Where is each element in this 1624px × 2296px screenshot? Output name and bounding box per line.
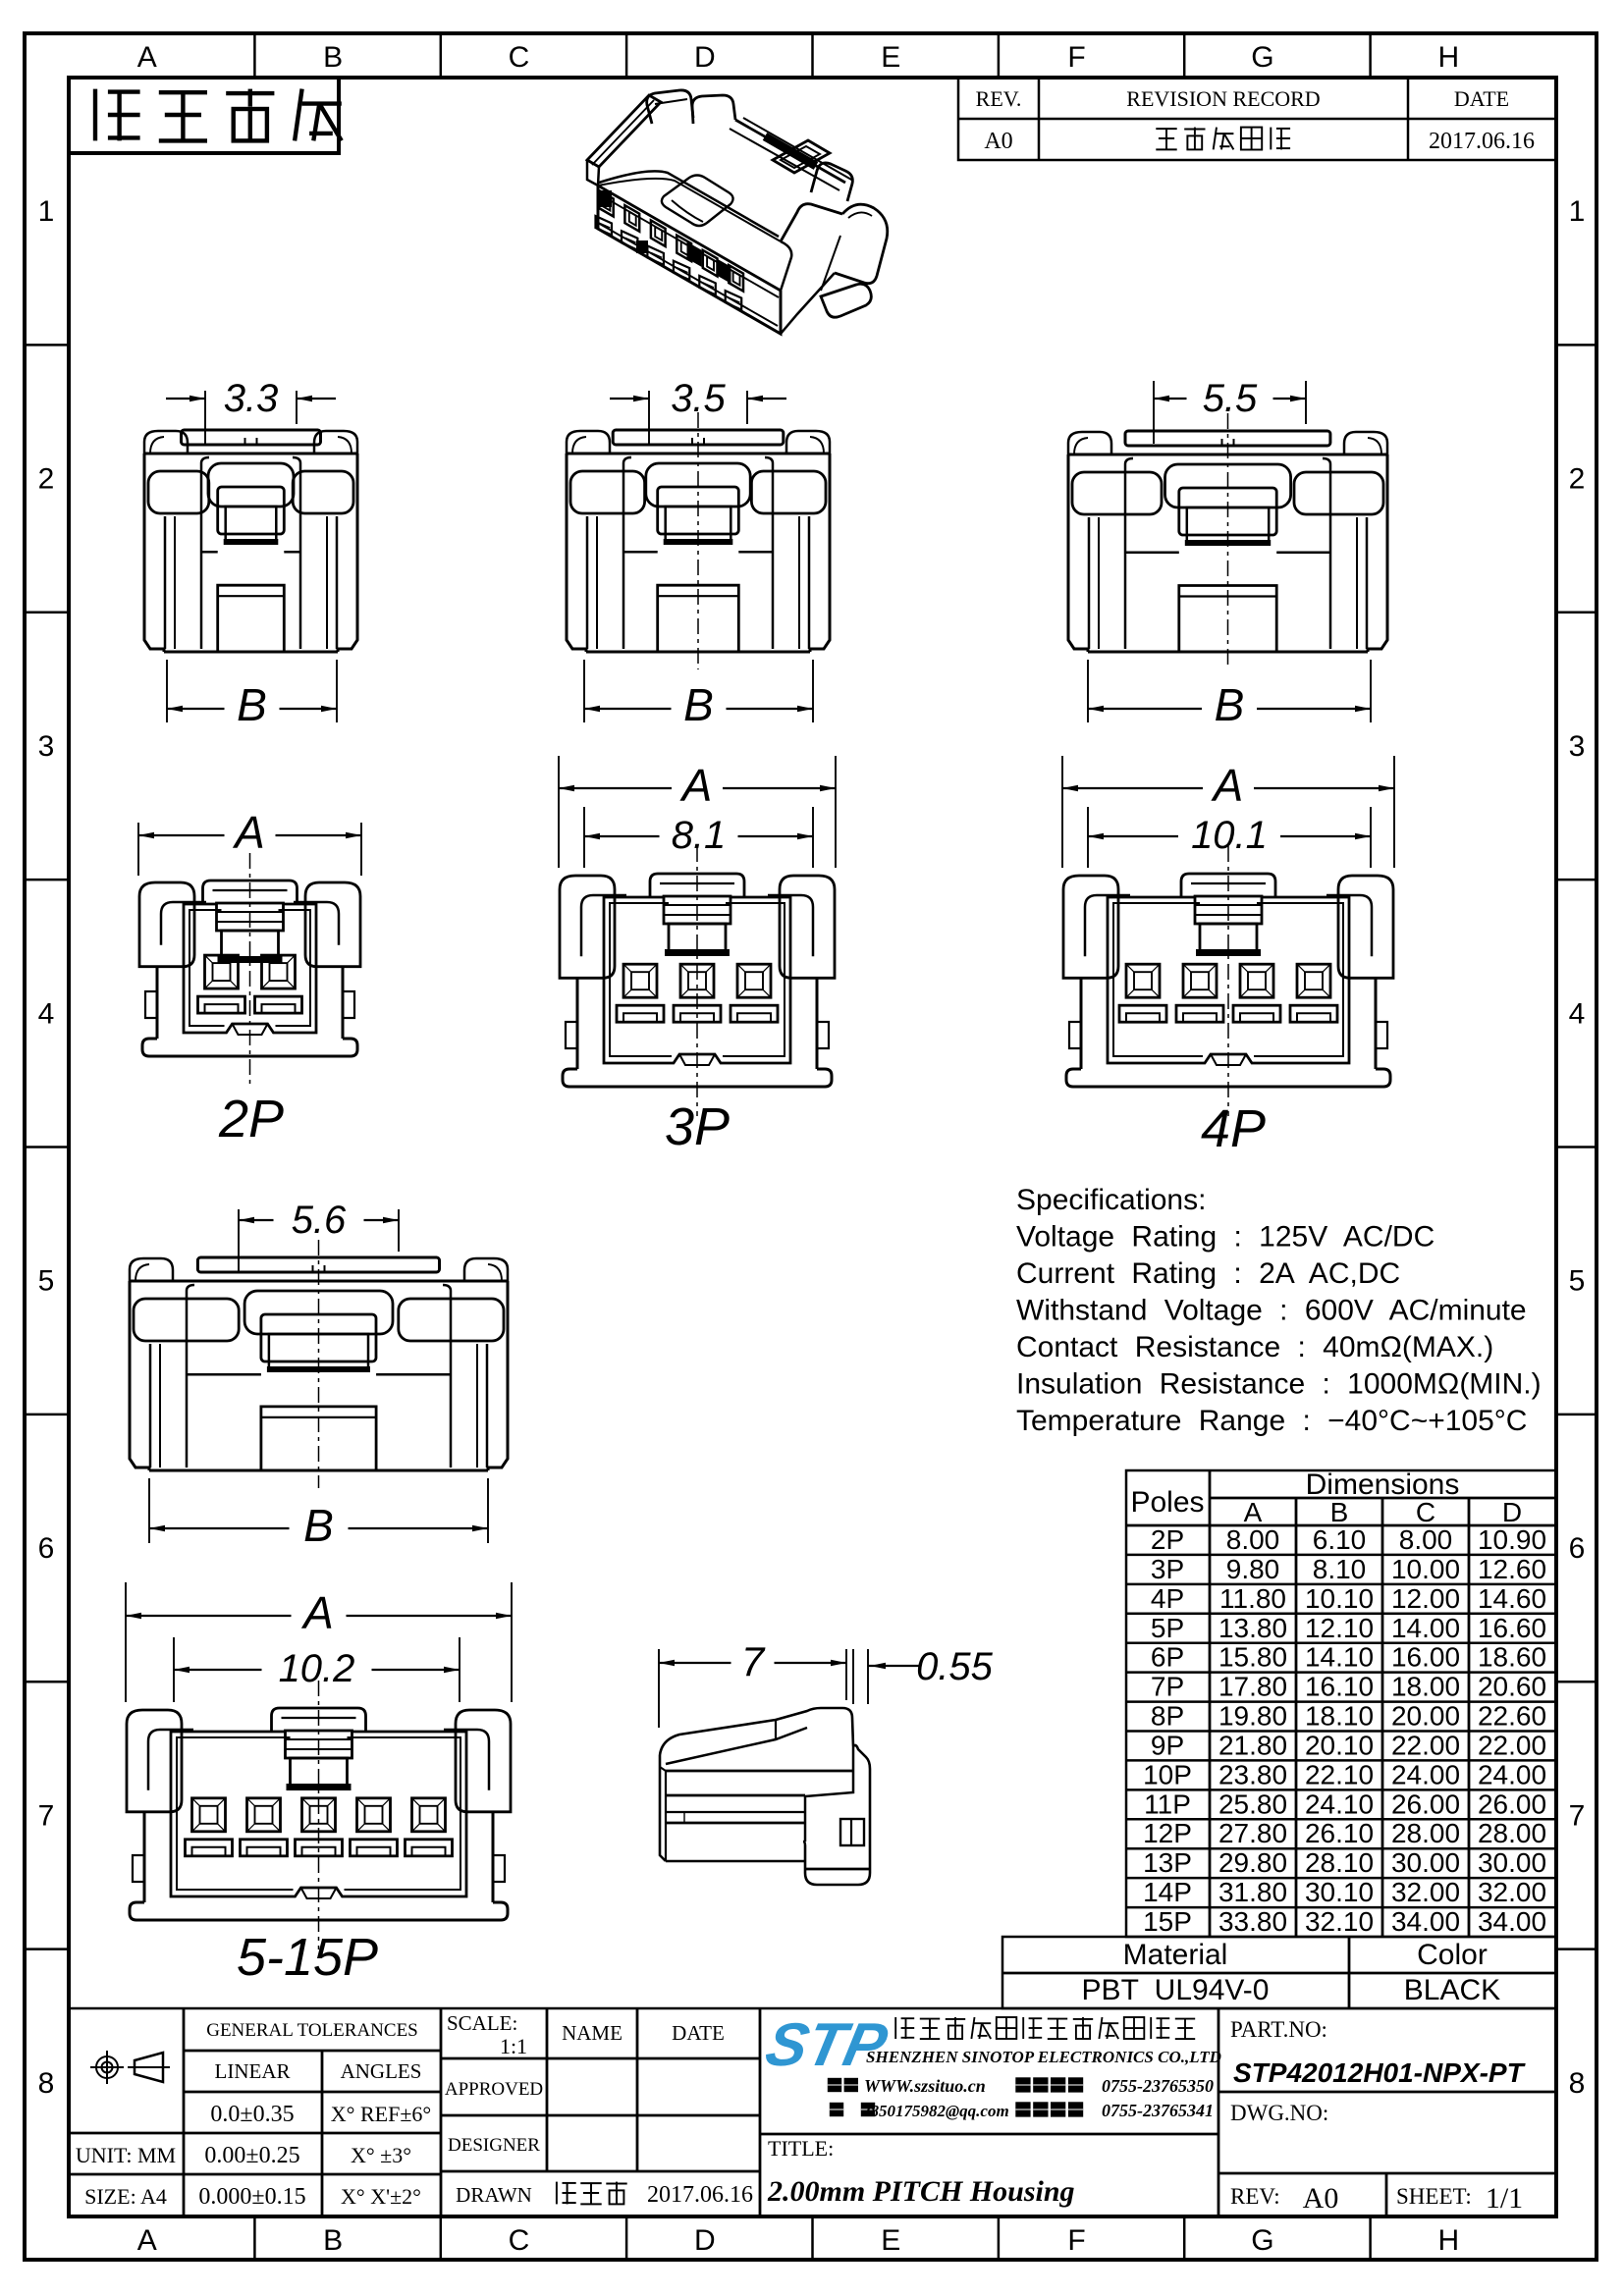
svg-text:3: 3: [1569, 730, 1586, 763]
svg-text:3.3: 3.3: [224, 377, 279, 420]
svg-text:2017.06.16: 2017.06.16: [647, 2182, 753, 2208]
svg-text:8.10: 8.10: [1313, 1554, 1367, 1584]
svg-text:SCALE:: SCALE:: [447, 2011, 517, 2035]
svg-text:20.60: 20.60: [1478, 1672, 1546, 1702]
svg-text:2P: 2P: [218, 1090, 284, 1148]
svg-text:17.80: 17.80: [1218, 1672, 1287, 1702]
svg-text:16.60: 16.60: [1478, 1613, 1546, 1643]
svg-text:F: F: [1067, 2224, 1085, 2257]
svg-text:7: 7: [38, 1799, 55, 1832]
svg-text:16.10: 16.10: [1305, 1672, 1374, 1702]
svg-text:G: G: [1251, 2224, 1273, 2257]
svg-text:12.10: 12.10: [1305, 1613, 1374, 1643]
svg-text:GENERAL TOLERANCES: GENERAL TOLERANCES: [206, 2020, 418, 2041]
svg-text:B: B: [323, 41, 343, 74]
svg-text:B: B: [303, 1500, 334, 1551]
svg-text:20.00: 20.00: [1391, 1701, 1460, 1732]
svg-text:X° ±3°: X° ±3°: [351, 2143, 411, 2167]
svg-text:15P: 15P: [1143, 1906, 1192, 1937]
svg-text:SHEET:: SHEET:: [1396, 2184, 1472, 2209]
svg-text:30.00: 30.00: [1391, 1847, 1460, 1878]
svg-text:5.6: 5.6: [292, 1199, 347, 1242]
svg-text:28.10: 28.10: [1305, 1847, 1374, 1878]
svg-text:32.00: 32.00: [1391, 1877, 1460, 1907]
svg-text:X° X'±2°: X° X'±2°: [341, 2184, 421, 2209]
svg-text:2P: 2P: [1151, 1524, 1184, 1555]
svg-text:14.00: 14.00: [1391, 1613, 1460, 1643]
svg-text:C: C: [509, 41, 530, 74]
svg-text:20.10: 20.10: [1305, 1731, 1374, 1761]
svg-text:10.2: 10.2: [279, 1647, 355, 1690]
svg-text:30.10: 30.10: [1305, 1877, 1374, 1907]
svg-text:10.1: 10.1: [1191, 814, 1268, 857]
svg-text:13P: 13P: [1143, 1847, 1192, 1878]
svg-text:22.60: 22.60: [1478, 1701, 1546, 1732]
svg-text:2.00mm PITCH Housing: 2.00mm PITCH Housing: [767, 2175, 1075, 2208]
svg-text:F: F: [1067, 41, 1085, 74]
svg-text:A: A: [1211, 760, 1244, 811]
svg-text:22.00: 22.00: [1478, 1731, 1546, 1761]
svg-text:5: 5: [38, 1265, 55, 1298]
svg-text:1/1: 1/1: [1486, 2182, 1523, 2215]
svg-text:A: A: [300, 1587, 334, 1638]
svg-text:Insulation Resistance : 1000MΩ: Insulation Resistance : 1000MΩ(MIN.): [1016, 1368, 1542, 1401]
svg-text:28.00: 28.00: [1391, 1818, 1460, 1848]
svg-text:14.60: 14.60: [1478, 1583, 1546, 1614]
svg-text:8.00: 8.00: [1226, 1524, 1280, 1555]
svg-text:21.80: 21.80: [1218, 1731, 1287, 1761]
svg-text:TITLE:: TITLE:: [768, 2136, 834, 2161]
svg-text:10.10: 10.10: [1305, 1583, 1374, 1614]
svg-text:D: D: [1502, 1497, 1522, 1527]
svg-text:3: 3: [38, 730, 55, 763]
svg-text:12.00: 12.00: [1391, 1583, 1460, 1614]
svg-text:DATE: DATE: [1454, 86, 1509, 111]
svg-text:Material: Material: [1123, 1939, 1228, 1971]
svg-text:7: 7: [1569, 1799, 1586, 1832]
svg-text:C: C: [509, 2224, 530, 2257]
svg-text:5-15P: 5-15P: [237, 1928, 378, 1987]
svg-text:15.80: 15.80: [1218, 1642, 1287, 1673]
svg-text:7: 7: [741, 1638, 766, 1684]
svg-text:B: B: [237, 679, 267, 730]
svg-text:H: H: [1437, 2224, 1459, 2257]
svg-text:22.10: 22.10: [1305, 1759, 1374, 1789]
svg-text:A0: A0: [984, 129, 1012, 154]
svg-text:4P: 4P: [1151, 1583, 1184, 1614]
svg-text:Current Rating : 2A AC,DC: Current Rating : 2A AC,DC: [1016, 1257, 1400, 1290]
svg-text:6: 6: [38, 1532, 55, 1565]
svg-text:31.80: 31.80: [1218, 1877, 1287, 1907]
svg-text:4: 4: [38, 997, 55, 1030]
svg-text:A: A: [137, 41, 157, 74]
svg-text:PBT UL94V-0: PBT UL94V-0: [1082, 1974, 1270, 2006]
svg-text:19.80: 19.80: [1218, 1701, 1287, 1732]
svg-text:DESIGNER: DESIGNER: [448, 2135, 540, 2156]
svg-text:DWG.NO:: DWG.NO:: [1230, 2101, 1328, 2125]
svg-text:DATE: DATE: [672, 2021, 725, 2045]
svg-text:5: 5: [1569, 1265, 1586, 1298]
svg-text:B: B: [323, 2224, 343, 2257]
svg-text:0.000±0.15: 0.000±0.15: [198, 2184, 305, 2210]
svg-text:PART.NO:: PART.NO:: [1230, 2017, 1327, 2042]
svg-text:REV:: REV:: [1230, 2184, 1280, 2209]
svg-text:12.60: 12.60: [1478, 1554, 1546, 1584]
svg-text:A: A: [232, 807, 265, 858]
svg-text:A0: A0: [1303, 2182, 1339, 2215]
svg-text:8P: 8P: [1151, 1701, 1184, 1732]
svg-text:E: E: [881, 2224, 900, 2257]
svg-text:2: 2: [1569, 463, 1586, 496]
svg-text:1:1: 1:1: [500, 2034, 527, 2058]
svg-text:D: D: [694, 2224, 716, 2257]
svg-text:24.10: 24.10: [1305, 1789, 1374, 1819]
svg-text:13.80: 13.80: [1218, 1613, 1287, 1643]
svg-text:25.80: 25.80: [1218, 1789, 1287, 1819]
svg-text:5P: 5P: [1151, 1613, 1184, 1643]
svg-text:1: 1: [38, 195, 55, 228]
svg-text:APPROVED: APPROVED: [445, 2079, 543, 2100]
svg-text:0.00±0.25: 0.00±0.25: [204, 2143, 299, 2168]
svg-text:8.1: 8.1: [672, 814, 727, 857]
svg-text:11.80: 11.80: [1219, 1583, 1286, 1614]
svg-text:18.60: 18.60: [1478, 1642, 1546, 1673]
svg-text:24.00: 24.00: [1478, 1759, 1546, 1789]
svg-text:X° REF±6°: X° REF±6°: [331, 2102, 431, 2126]
svg-text:WWW.szsituo.cn: WWW.szsituo.cn: [864, 2076, 986, 2096]
svg-text:STP42012H01-NPX-PT: STP42012H01-NPX-PT: [1233, 2057, 1527, 2088]
svg-text:B: B: [1215, 679, 1245, 730]
svg-text:32.00: 32.00: [1478, 1877, 1546, 1907]
svg-text:Poles: Poles: [1130, 1486, 1204, 1519]
svg-text:Specifications:: Specifications:: [1016, 1184, 1206, 1216]
svg-text:32.10: 32.10: [1305, 1906, 1374, 1937]
svg-text:8.00: 8.00: [1399, 1524, 1453, 1555]
svg-text:1: 1: [1569, 195, 1586, 228]
svg-text:10P: 10P: [1143, 1759, 1192, 1789]
svg-text:2: 2: [38, 463, 55, 496]
svg-text:Contact Resistance : 40mΩ(MAX.: Contact Resistance : 40mΩ(MAX.): [1016, 1331, 1493, 1363]
svg-text:REVISION RECORD: REVISION RECORD: [1126, 86, 1320, 111]
svg-text:6P: 6P: [1151, 1642, 1184, 1673]
svg-text:3.5: 3.5: [671, 377, 726, 420]
svg-text:0.0±0.35: 0.0±0.35: [210, 2102, 294, 2127]
svg-text:B: B: [1330, 1497, 1349, 1527]
svg-text:DRAWN: DRAWN: [456, 2183, 532, 2207]
svg-text:0755-23765341: 0755-23765341: [1102, 2101, 1214, 2120]
svg-text:Dimensions: Dimensions: [1306, 1468, 1460, 1501]
svg-text:0755-23765350: 0755-23765350: [1102, 2076, 1214, 2096]
svg-text:26.00: 26.00: [1478, 1789, 1546, 1819]
svg-text:34.00: 34.00: [1478, 1906, 1546, 1937]
svg-text:STP: STP: [760, 2011, 893, 2079]
svg-text:14.10: 14.10: [1305, 1642, 1374, 1673]
svg-text:UNIT: MM: UNIT: MM: [76, 2143, 176, 2167]
svg-text:E: E: [881, 41, 900, 74]
svg-text:3P: 3P: [665, 1097, 730, 1156]
svg-text:4P: 4P: [1201, 1099, 1266, 1158]
svg-text:3P: 3P: [1151, 1554, 1184, 1584]
svg-text:LINEAR: LINEAR: [215, 2059, 291, 2083]
svg-text:9P: 9P: [1151, 1731, 1184, 1761]
svg-text:18.00: 18.00: [1391, 1672, 1460, 1702]
svg-text:A: A: [137, 2224, 157, 2257]
svg-text:4: 4: [1569, 997, 1586, 1030]
svg-text:8: 8: [38, 2067, 55, 2100]
svg-text:G: G: [1251, 41, 1273, 74]
svg-text:A: A: [679, 760, 713, 811]
svg-text:9.80: 9.80: [1226, 1554, 1280, 1584]
svg-text:NAME: NAME: [562, 2021, 623, 2045]
svg-text:ANGLES: ANGLES: [341, 2059, 422, 2083]
svg-text:B: B: [683, 679, 714, 730]
svg-text:6.10: 6.10: [1313, 1524, 1367, 1555]
svg-text:2017.06.16: 2017.06.16: [1429, 129, 1535, 154]
svg-text:Color: Color: [1417, 1939, 1488, 1971]
svg-text:30.00: 30.00: [1478, 1847, 1546, 1878]
svg-text:10.90: 10.90: [1478, 1524, 1546, 1555]
svg-text:22.00: 22.00: [1391, 1731, 1460, 1761]
svg-text:SHENZHEN SINOTOP ELECTRONICS C: SHENZHEN SINOTOP ELECTRONICS CO.,LTD: [866, 2048, 1221, 2066]
svg-text:REV.: REV.: [976, 86, 1022, 111]
svg-text:14P: 14P: [1143, 1877, 1192, 1907]
svg-text:24.00: 24.00: [1391, 1759, 1460, 1789]
svg-text:16.00: 16.00: [1391, 1642, 1460, 1673]
svg-text:BLACK: BLACK: [1404, 1974, 1500, 2006]
svg-text:12P: 12P: [1143, 1818, 1192, 1848]
svg-text:29.80: 29.80: [1218, 1847, 1287, 1878]
svg-text:10.00: 10.00: [1391, 1554, 1460, 1584]
svg-text:27.80: 27.80: [1218, 1818, 1287, 1848]
svg-text:33.80: 33.80: [1218, 1906, 1287, 1937]
svg-text:D: D: [694, 41, 716, 74]
svg-text:7P: 7P: [1151, 1672, 1184, 1702]
svg-text:18.10: 18.10: [1305, 1701, 1374, 1732]
svg-text:26.10: 26.10: [1305, 1818, 1374, 1848]
svg-text:Voltage Rating : 125V AC/DC: Voltage Rating : 125V AC/DC: [1016, 1221, 1435, 1254]
svg-text:6: 6: [1569, 1532, 1586, 1565]
svg-text:SIZE: A4: SIZE: A4: [84, 2184, 167, 2209]
svg-text:23.80: 23.80: [1218, 1759, 1287, 1789]
svg-text:0.55: 0.55: [916, 1645, 994, 1688]
svg-text:34.00: 34.00: [1391, 1906, 1460, 1937]
svg-text:C: C: [1416, 1497, 1435, 1527]
svg-text:11P: 11P: [1144, 1789, 1191, 1819]
svg-text:H: H: [1437, 41, 1459, 74]
svg-text:A: A: [1244, 1497, 1263, 1527]
svg-text:2850175982@qq.com: 2850175982@qq.com: [861, 2102, 1009, 2120]
svg-text:28.00: 28.00: [1478, 1818, 1546, 1848]
svg-text:5.5: 5.5: [1203, 377, 1258, 420]
svg-text:Temperature Range : −40°C~+105: Temperature Range : −40°C~+105°C: [1016, 1405, 1527, 1437]
svg-text:Withstand Voltage : 600V AC/mi: Withstand Voltage : 600V AC/minute: [1016, 1295, 1527, 1327]
svg-text:8: 8: [1569, 2067, 1586, 2100]
svg-text:26.00: 26.00: [1391, 1789, 1460, 1819]
